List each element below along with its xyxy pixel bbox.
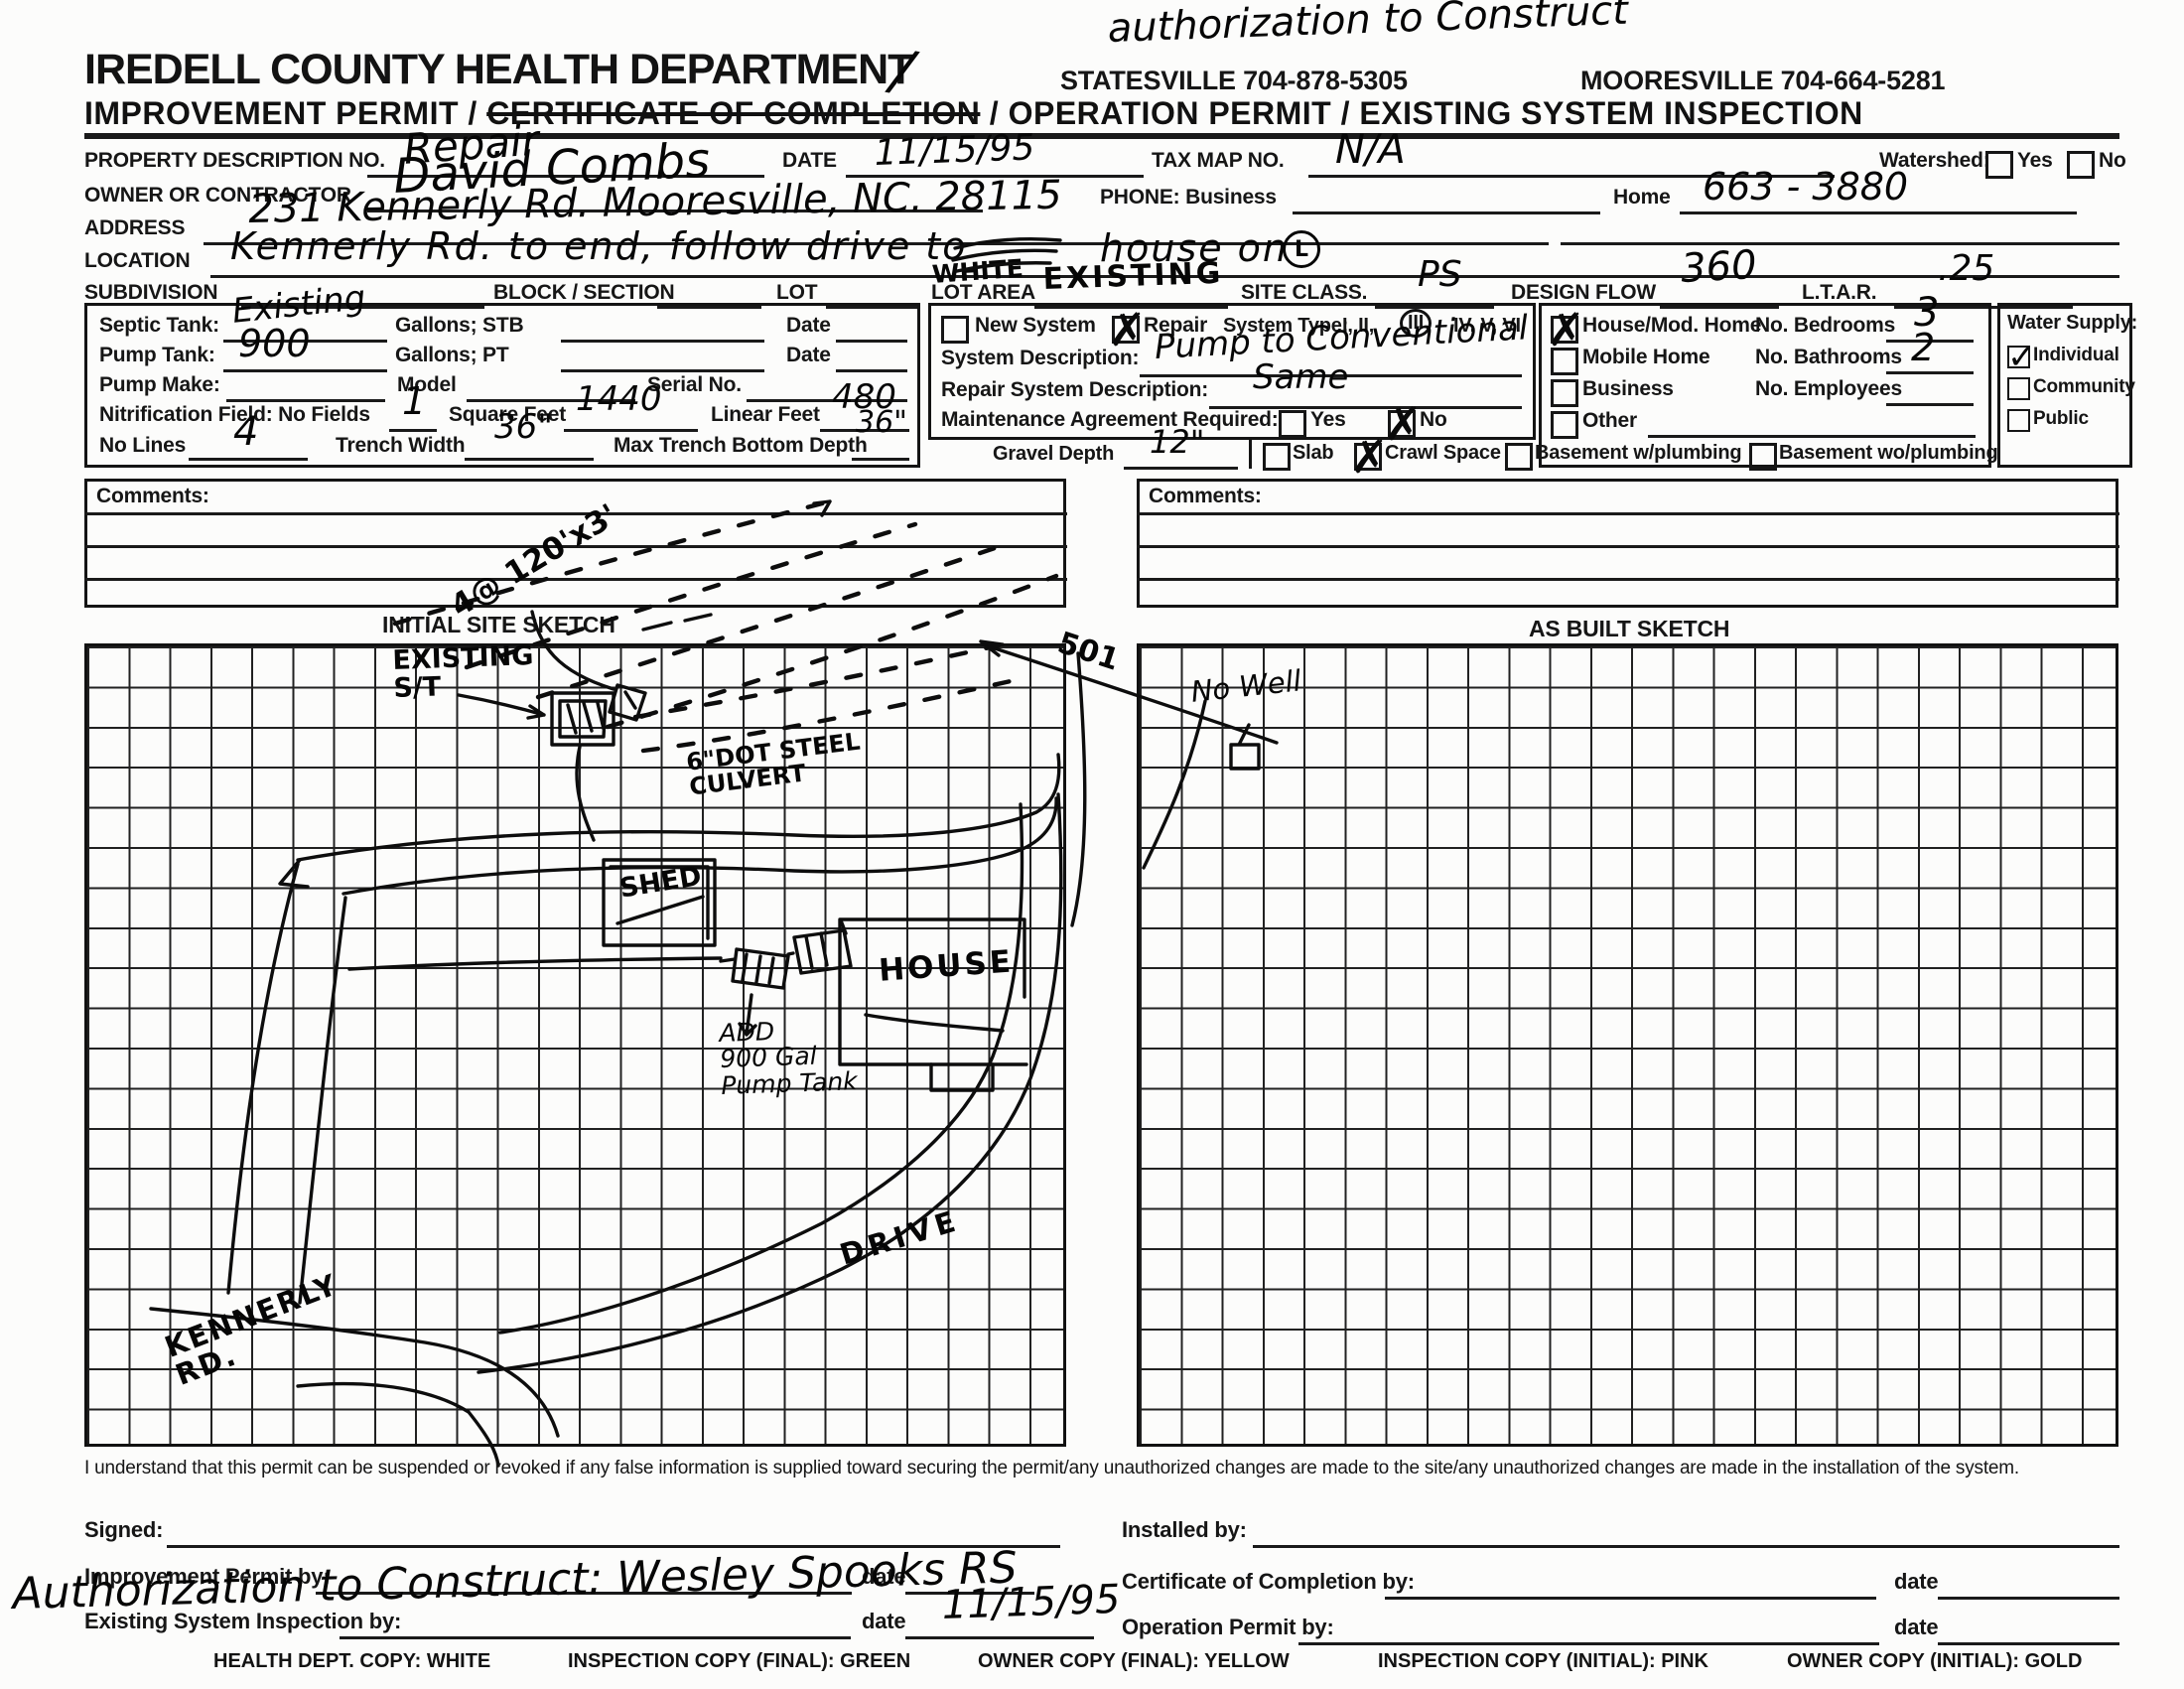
phone-business-label: PHONE: Business <box>1100 186 1277 210</box>
certificate-date-line <box>1938 1597 2119 1600</box>
tax-map-value: N/A <box>1335 127 1406 173</box>
water-public-label: Public <box>2033 408 2089 430</box>
repair-description-value: Same <box>1253 357 1348 397</box>
max-depth-label: Max Trench Bottom Depth <box>614 434 868 458</box>
home-line <box>1680 211 2077 214</box>
location-value-pre: Kennerly Rd. to end, follow drive to <box>230 224 967 268</box>
slab-checkbox <box>1263 443 1291 471</box>
comments-left-label: Comments: <box>96 485 209 508</box>
watershed-no-checkbox <box>2067 151 2095 179</box>
form-title: IMPROVEMENT PERMIT / CERTIFICATE OF COMP… <box>84 95 1863 132</box>
bathrooms-value: 2 <box>1911 326 1935 369</box>
location-circled-letter: L <box>1283 230 1320 268</box>
watershed-yes-checkbox <box>1985 151 2013 179</box>
lot-label: LOT <box>776 281 817 305</box>
max-depth-line <box>852 458 909 461</box>
initial-sketch-label: INITIAL SITE SKETCH <box>382 612 615 638</box>
comments-right-line-1 <box>1137 512 2119 515</box>
copy-health-dept: HEALTH DEPT. COPY: WHITE <box>213 1650 490 1673</box>
mobile-home-label: Mobile Home <box>1582 346 1709 369</box>
house-mod-label: House/Mod. Home <box>1582 314 1761 338</box>
pt-line <box>561 369 764 372</box>
gravel-depth-label: Gravel Depth <box>993 443 1114 466</box>
new-system-checkbox <box>941 316 969 344</box>
stb-line <box>561 340 764 343</box>
permit-statement: I understand that this permit can be sus… <box>84 1458 2019 1479</box>
water-individual-checkbox <box>2007 346 2030 368</box>
form-title-post: / OPERATION PERMIT / EXISTING SYSTEM INS… <box>980 95 1862 131</box>
crawl-space-label: Crawl Space <box>1385 442 1501 465</box>
square-feet-line <box>564 429 698 432</box>
linear-feet-label: Linear Feet <box>711 403 820 427</box>
design-flow-label: DESIGN FLOW <box>1511 281 1656 305</box>
system-description-label: System Description: <box>941 347 1139 370</box>
maintenance-yes-checkbox <box>1279 410 1306 438</box>
employees-line <box>1886 403 1974 406</box>
repair-description-label: Repair System Description: <box>941 378 1208 402</box>
signed-label: Signed: <box>84 1517 163 1543</box>
maintenance-yes-label: Yes <box>1310 408 1346 432</box>
existing-inspection-line <box>340 1636 851 1639</box>
comments-right-label: Comments: <box>1149 485 1262 508</box>
water-supply-label: Water Supply: <box>2007 312 2137 335</box>
design-flow-value: 360 <box>1680 242 1758 292</box>
operation-date-line <box>1938 1642 2119 1645</box>
no-lines-label: No Lines <box>99 434 186 458</box>
comments-box-right <box>1137 479 2118 608</box>
maintenance-label: Maintenance Agreement Required: <box>941 408 1279 432</box>
no-fields-line <box>389 429 437 432</box>
annotation-pump-tank: ADD 900 Gal Pump Tank <box>719 1016 858 1098</box>
lot-area-value: EXISTING <box>1042 256 1224 297</box>
pump-tank-label: Pump Tank: <box>99 344 215 367</box>
new-system-label: New System <box>975 314 1096 338</box>
business-label: Business <box>1582 377 1674 401</box>
copy-inspection-initial: INSPECTION COPY (INITIAL): PINK <box>1378 1650 1708 1673</box>
comments-right-line-3 <box>1137 578 2119 581</box>
certificate-date-label: date <box>1894 1569 1938 1595</box>
other-label: Other <box>1582 409 1637 433</box>
as-built-sketch-grid <box>1137 643 2118 1447</box>
trench-width-value: 36" <box>494 407 553 447</box>
employees-label: No. Employees <box>1755 377 1902 401</box>
bathrooms-line <box>1886 371 1974 374</box>
mobile-home-checkbox <box>1551 348 1578 375</box>
lot-area-label: LOT AREA <box>931 281 1035 305</box>
ltar-label: L.T.A.R. <box>1802 281 1876 305</box>
phone-business-line <box>1293 211 1600 214</box>
statesville-phone: STATESVILLE 704-878-5305 <box>1060 66 1408 96</box>
certificate-label: Certificate of Completion by: <box>1122 1569 1415 1595</box>
watershed-no-label: No <box>2099 149 2126 173</box>
trench-width-line <box>465 458 594 461</box>
pump-make-label: Pump Make: <box>99 373 220 397</box>
operation-permit-label: Operation Permit by: <box>1122 1615 1334 1640</box>
form-title-struck: CERTIFICATE OF COMPLETION <box>486 95 980 131</box>
scanned-permit-form: authorization to Construct IREDELL COUNT… <box>0 0 2184 1689</box>
water-community-checkbox <box>2007 377 2030 400</box>
bedrooms-label: No. Bedrooms <box>1755 314 1895 338</box>
pt-date-label: Date <box>786 344 831 367</box>
pump-make-line <box>226 399 385 402</box>
title-underline <box>84 133 2119 139</box>
handwritten-header-note: authorization to Construct <box>1107 0 1629 52</box>
pump-line <box>223 369 387 372</box>
stb-date-label: Date <box>786 314 831 338</box>
basement-w-checkbox <box>1505 443 1533 471</box>
block-section-label: BLOCK / SECTION <box>493 281 675 305</box>
strip-divider <box>1249 437 1252 469</box>
certificate-line <box>1385 1597 1876 1600</box>
water-individual-label: Individual <box>2033 345 2119 366</box>
slab-label: Slab <box>1293 442 1333 465</box>
maintenance-no-label: No <box>1420 408 1447 432</box>
septic-tank-label: Septic Tank: <box>99 314 219 338</box>
pt-date-line <box>836 369 907 372</box>
no-fields-value: 1 <box>402 379 426 423</box>
sketch-label-dashes <box>643 615 711 630</box>
installed-by-line <box>1253 1545 2119 1548</box>
water-community-label: Community <box>2033 376 2135 398</box>
date-label: DATE <box>782 149 837 173</box>
gravel-depth-line <box>1124 467 1238 470</box>
location-label: LOCATION <box>84 249 191 273</box>
department-title: IREDELL COUNTY HEALTH DEPARTMENT <box>84 46 912 94</box>
tax-map-label: TAX MAP NO. <box>1152 149 1285 173</box>
copy-owner-initial: OWNER COPY (INITIAL): GOLD <box>1787 1650 2082 1673</box>
existing-date-line <box>905 1636 1094 1639</box>
bathrooms-label: No. Bathrooms <box>1755 346 1902 369</box>
right-descender <box>1072 653 1085 925</box>
home-value: 663 - 3880 <box>1703 165 1908 209</box>
business-checkbox <box>1551 379 1578 407</box>
copy-inspection-final: INSPECTION COPY (FINAL): GREEN <box>568 1650 910 1673</box>
subdivision-label: SUBDIVISION <box>84 281 217 305</box>
other-checkbox <box>1551 411 1578 439</box>
repair-checkbox <box>1112 316 1140 344</box>
date-value: 11/15/95 <box>874 127 1035 174</box>
gallons-pt-label: Gallons; PT <box>395 344 508 367</box>
site-class-label: SITE CLASS. <box>1241 281 1367 305</box>
water-public-checkbox <box>2007 409 2030 432</box>
address-line-2 <box>1561 242 2119 245</box>
annotation-existing-st: EXISTING S/T <box>392 642 535 704</box>
comments-right-line-2 <box>1137 545 2119 548</box>
no-lines-line <box>189 458 308 461</box>
operation-permit-line <box>1298 1642 1879 1645</box>
mooresville-phone: MOORESVILLE 704-664-5281 <box>1580 66 1945 96</box>
other-line <box>1648 435 1976 438</box>
address-value: 231 Kennerly Rd. Mooresville, NC. 28115 <box>248 173 1062 232</box>
as-built-sketch-label: AS BUILT SKETCH <box>1529 616 1729 642</box>
site-class-value: PS <box>1418 254 1462 295</box>
house-mod-checkbox <box>1551 316 1578 344</box>
crawl-space-checkbox <box>1354 443 1382 471</box>
stb-date-line <box>836 340 907 343</box>
gallons-stb-label: Gallons; STB <box>395 314 523 338</box>
watershed-yes-label: Yes <box>2017 149 2053 173</box>
copy-owner-final: OWNER COPY (FINAL): YELLOW <box>978 1650 1290 1673</box>
home-label: Home <box>1613 186 1671 210</box>
trench-width-label: Trench Width <box>336 434 465 458</box>
gravel-depth-value: 12" <box>1150 423 1204 461</box>
installed-by-label: Installed by: <box>1122 1517 1247 1543</box>
maintenance-no-checkbox <box>1388 410 1416 438</box>
max-depth-value: 36" <box>856 405 907 440</box>
operation-date-label: date <box>1894 1615 1938 1640</box>
pump-tank-value: 900 <box>238 322 311 365</box>
address-label: ADDRESS <box>84 216 185 240</box>
no-lines-value: 4 <box>233 409 258 455</box>
existing-date-label: date <box>862 1609 905 1634</box>
property-no-label: PROPERTY DESCRIPTION NO. <box>84 149 385 173</box>
comments-left-line-3 <box>84 578 1067 581</box>
ltar-value: .25 <box>1938 248 1994 289</box>
square-feet-value: 1440 <box>576 379 662 419</box>
